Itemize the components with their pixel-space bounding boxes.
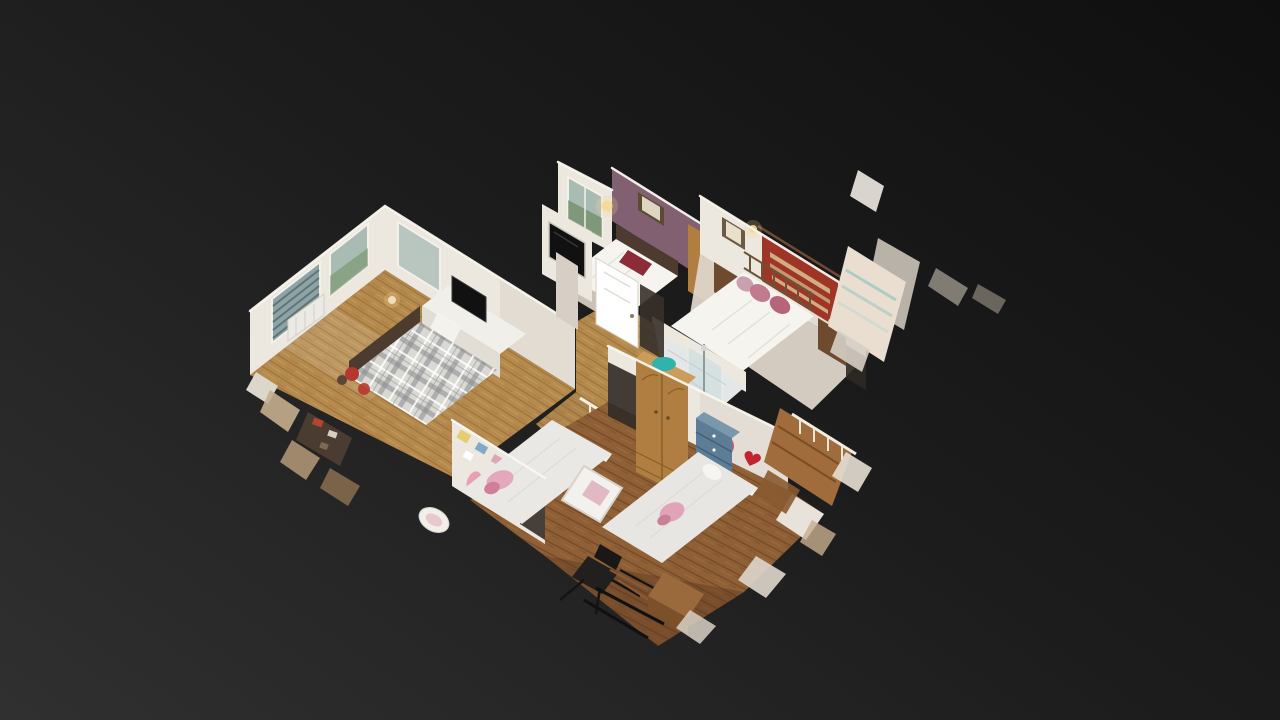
dollhouse-model <box>0 0 1280 720</box>
3d-viewport[interactable] <box>0 0 1280 720</box>
wall-fragment <box>850 170 884 212</box>
distant-fragment <box>972 284 1006 314</box>
red-clothes-pile <box>345 367 359 381</box>
paper-lantern <box>388 296 396 304</box>
door-knob <box>630 314 634 318</box>
bedside-lamp <box>602 201 613 212</box>
distant-fragment <box>928 268 968 306</box>
shower-head <box>701 345 707 351</box>
